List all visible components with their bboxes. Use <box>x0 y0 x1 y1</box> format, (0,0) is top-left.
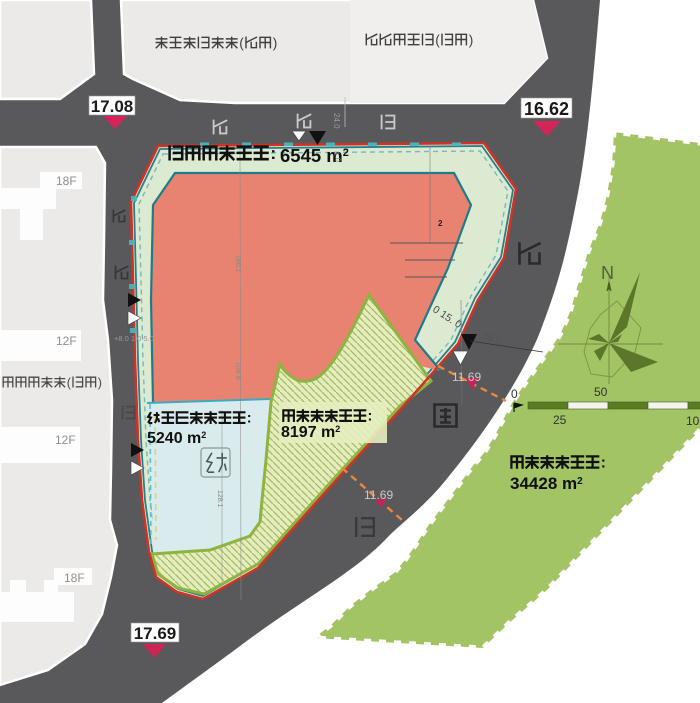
svg-text:(: ( <box>435 33 440 48</box>
svg-text:186.1: 186.1 <box>234 255 241 273</box>
svg-text:128.1: 128.1 <box>216 490 223 508</box>
svg-text:100: 100 <box>686 414 700 428</box>
svg-text:11.69: 11.69 <box>364 488 393 502</box>
svg-text:(: ( <box>239 36 244 51</box>
svg-text:12F: 12F <box>55 433 76 447</box>
svg-text::: : <box>601 454 606 471</box>
svg-text:25: 25 <box>553 413 567 427</box>
svg-text:1.0: 1.0 <box>332 151 343 163</box>
svg-text:2: 2 <box>438 219 443 228</box>
svg-text:5240 m2: 5240 m2 <box>147 430 206 447</box>
svg-text:): ) <box>98 376 102 390</box>
svg-text:+8.0 1.0 5.0: +8.0 1.0 5.0 <box>114 334 154 343</box>
svg-text:): ) <box>469 33 474 48</box>
svg-text::: : <box>247 411 252 427</box>
svg-text:17.69: 17.69 <box>134 624 177 643</box>
svg-text:18F: 18F <box>56 174 77 188</box>
svg-text:12F: 12F <box>56 334 77 348</box>
svg-text:11.69: 11.69 <box>452 370 481 384</box>
svg-text::: : <box>270 143 276 163</box>
svg-text:17.08: 17.08 <box>91 97 134 116</box>
svg-text:8197 m2: 8197 m2 <box>281 424 340 441</box>
svg-text:34428 m2: 34428 m2 <box>510 474 583 493</box>
svg-text:18F: 18F <box>64 571 85 585</box>
svg-text:24.0: 24.0 <box>332 113 341 129</box>
svg-text:N: N <box>601 263 614 283</box>
svg-text:): ) <box>273 36 278 51</box>
svg-text:50: 50 <box>594 385 608 399</box>
svg-text:0: 0 <box>511 387 518 401</box>
svg-text:16.62: 16.62 <box>524 99 569 119</box>
svg-text:104.9: 104.9 <box>234 362 241 380</box>
svg-text::: : <box>368 409 373 425</box>
